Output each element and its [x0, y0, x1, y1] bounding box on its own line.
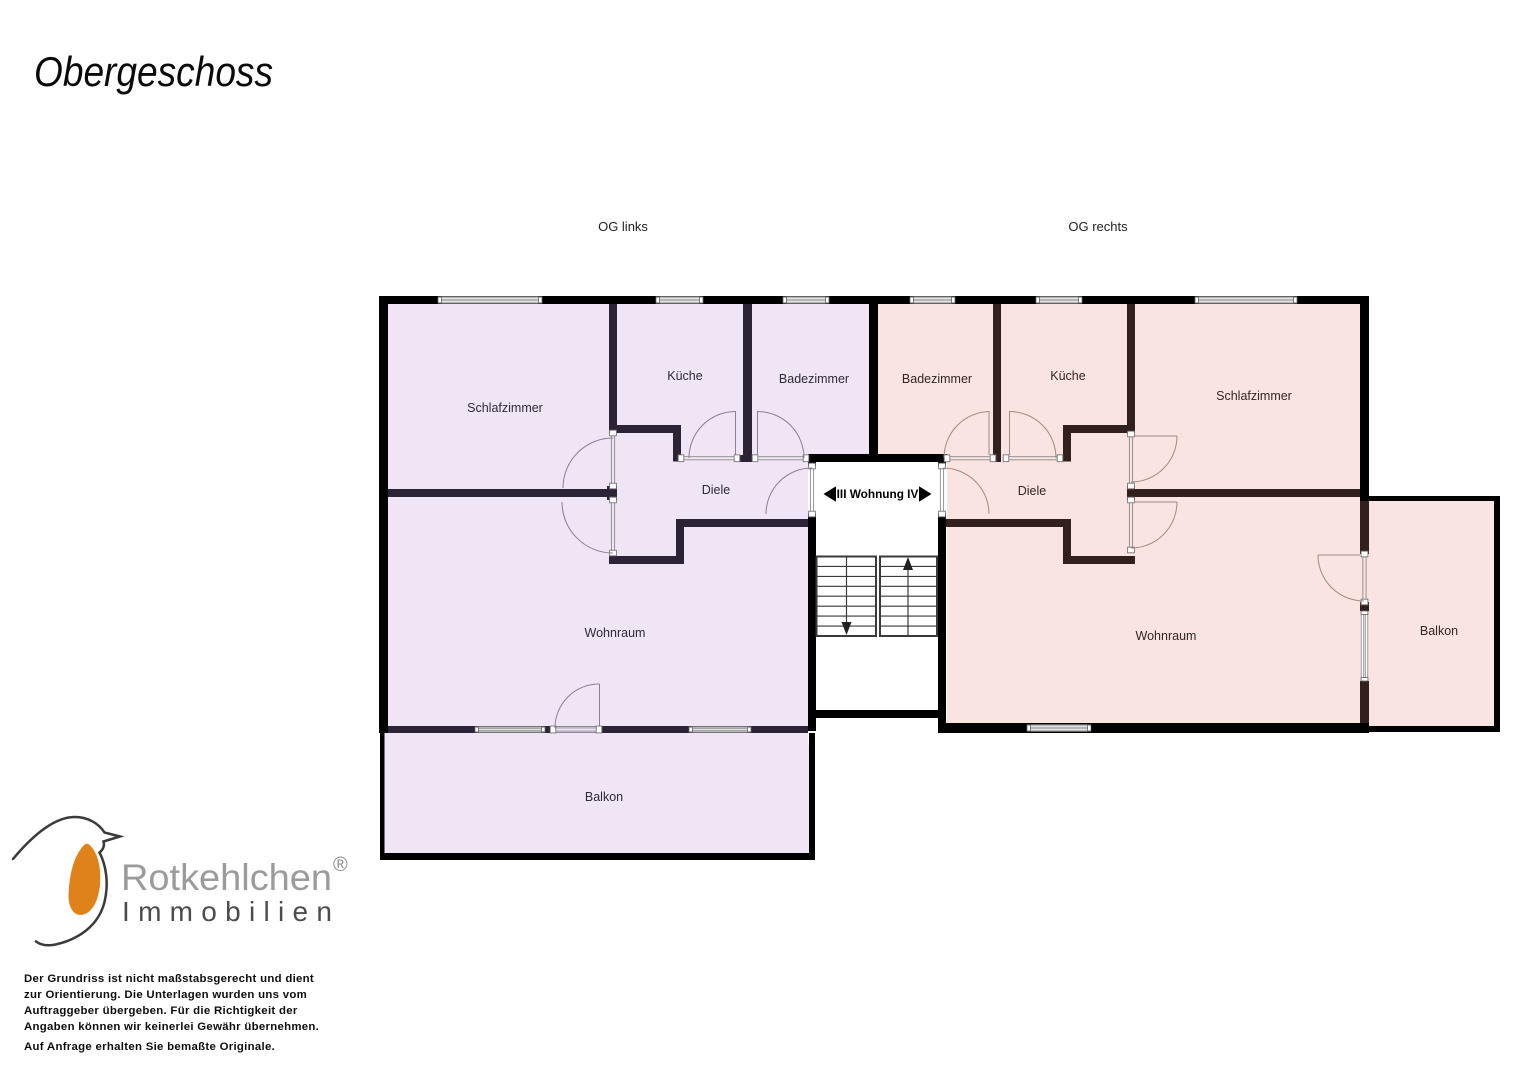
svg-text:Diele: Diele [702, 483, 731, 497]
svg-text:III Wohnung IV: III Wohnung IV [837, 487, 919, 501]
svg-text:Diele: Diele [1018, 484, 1047, 498]
svg-text:Schlafzimmer: Schlafzimmer [467, 401, 543, 415]
svg-text:Badezimmer: Badezimmer [779, 372, 849, 386]
svg-text:®: ® [333, 854, 348, 876]
svg-text:OG rechts: OG rechts [1068, 219, 1128, 234]
svg-text:Der Grundriss ist nicht maßsta: Der Grundriss ist nicht maßstabsgerecht … [24, 973, 314, 985]
svg-text:Wohnraum: Wohnraum [1136, 629, 1197, 643]
svg-text:Schlafzimmer: Schlafzimmer [1216, 389, 1292, 403]
svg-text:OG links: OG links [598, 219, 648, 234]
svg-text:Balkon: Balkon [585, 790, 623, 804]
svg-text:Küche: Küche [667, 369, 702, 383]
svg-text:zur Orientierung. Die Unterlag: zur Orientierung. Die Unterlagen wurden … [24, 989, 307, 1001]
svg-text:Angaben können wir keinerlei G: Angaben können wir keinerlei Gewähr über… [24, 1021, 319, 1033]
svg-text:Balkon: Balkon [1420, 624, 1458, 638]
svg-text:Rotkehlchen: Rotkehlchen [121, 857, 332, 898]
svg-text:Küche: Küche [1050, 369, 1085, 383]
svg-text:Immobilien: Immobilien [122, 896, 332, 927]
svg-text:Auf Anfrage erhalten Sie bemaß: Auf Anfrage erhalten Sie bemaßte Origina… [24, 1041, 275, 1053]
svg-text:Auftraggeber übergeben. Für di: Auftraggeber übergeben. Für die Richtigk… [24, 1005, 298, 1017]
svg-text:Wohnraum: Wohnraum [585, 626, 646, 640]
svg-text:Obergeschoss: Obergeschoss [34, 48, 273, 95]
svg-text:Badezimmer: Badezimmer [902, 372, 972, 386]
